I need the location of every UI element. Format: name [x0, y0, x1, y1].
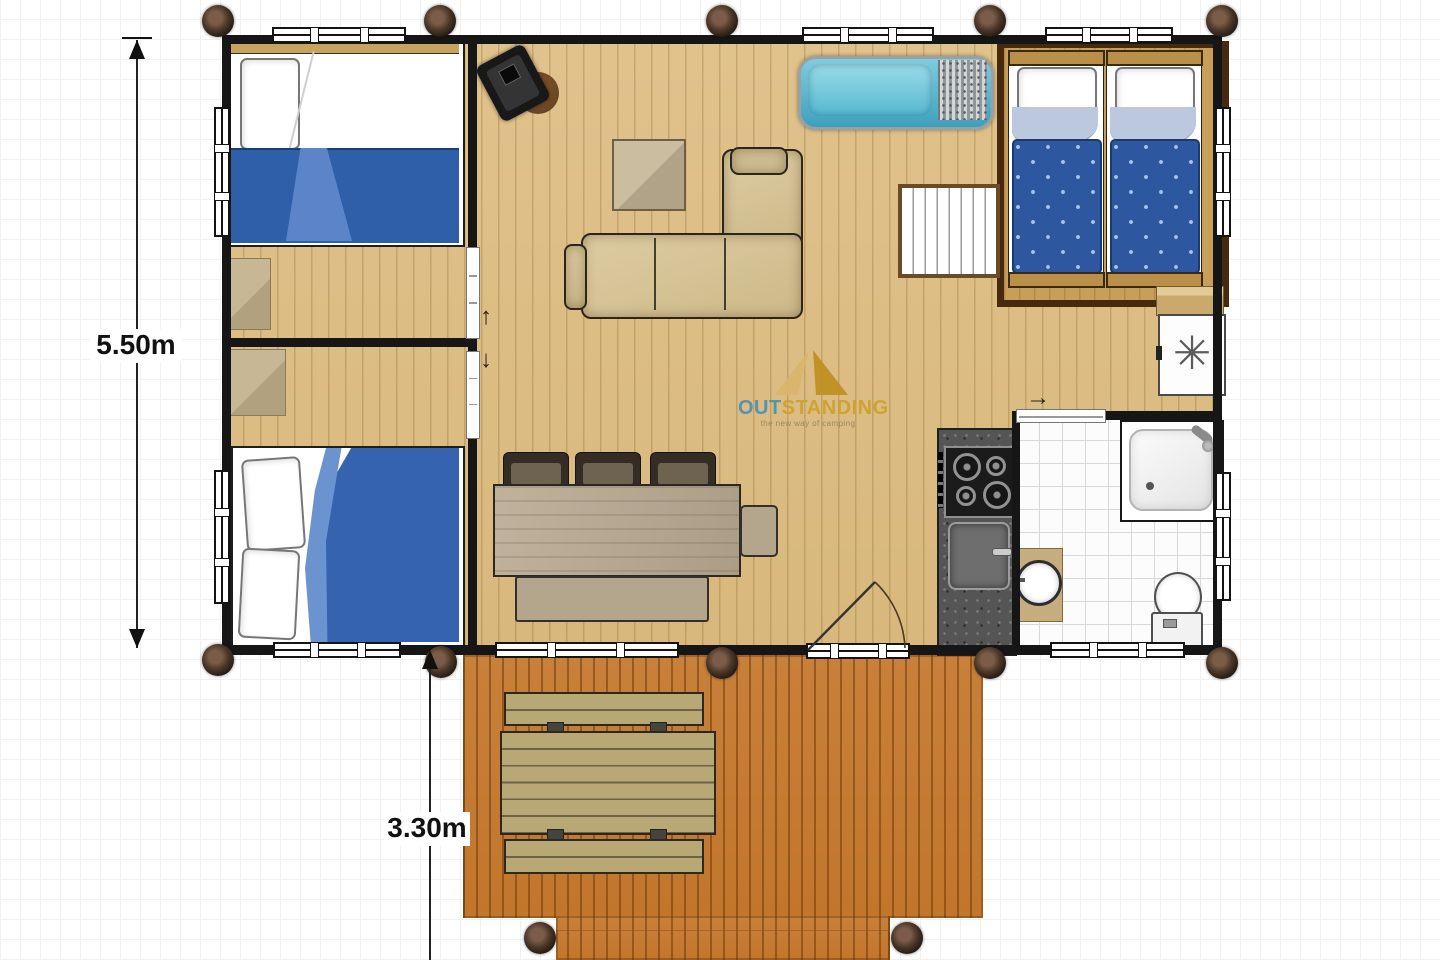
brand-name-part1: OUT — [738, 397, 782, 419]
coffee-table — [612, 139, 686, 211]
window — [1045, 27, 1173, 43]
dimension-arrow-down — [129, 629, 145, 648]
hob-knobs — [938, 452, 943, 508]
shower-drain — [1146, 482, 1154, 490]
window — [1215, 472, 1231, 601]
lounger-rack — [938, 60, 987, 120]
burner-small — [956, 486, 976, 506]
deck-terrace-step — [556, 916, 890, 960]
brand-watermark: OUTSTANDING the new way of camping — [738, 348, 878, 428]
dimension-arrow-up — [422, 650, 438, 669]
support-post — [891, 922, 923, 954]
wall-between-bedrooms — [222, 338, 468, 347]
dimension-cap — [122, 37, 152, 39]
support-post — [974, 5, 1006, 37]
bed-headboard — [1106, 50, 1203, 66]
dimension-terrace-label: 3.30m — [384, 812, 470, 846]
wall-interior-vertical — [468, 437, 477, 655]
window — [273, 642, 401, 658]
support-post — [974, 647, 1006, 679]
twin-bed-left — [1008, 50, 1104, 286]
deck-seam — [556, 930, 890, 931]
window — [1050, 642, 1185, 658]
dining-table — [493, 484, 741, 577]
faucet — [992, 548, 1012, 556]
pillow — [241, 456, 306, 552]
burner-large — [983, 481, 1011, 509]
window — [214, 107, 230, 237]
lounger-cushion — [808, 64, 932, 116]
dimension-height-label: 5.50m — [90, 329, 182, 363]
sofa-headrest — [730, 147, 788, 175]
duvet — [1012, 139, 1102, 274]
wash-basin — [1016, 560, 1062, 606]
support-post — [202, 644, 234, 676]
entrance-door-swing — [795, 545, 920, 660]
burner-small — [986, 456, 1006, 476]
support-post — [524, 922, 556, 954]
dresser — [227, 349, 286, 416]
gas-hob — [944, 446, 1014, 518]
slide-direction-right: → — [1026, 386, 1050, 410]
support-post — [424, 5, 456, 37]
support-post — [706, 647, 738, 679]
sofa-seam — [654, 238, 656, 310]
wardrobe — [898, 184, 1000, 278]
slide-direction-up: ↑ — [480, 305, 492, 329]
pillow — [238, 548, 301, 641]
shower — [1120, 420, 1224, 522]
window — [214, 470, 230, 604]
sofa-seam — [724, 238, 726, 310]
wall-interior-vertical — [468, 35, 477, 247]
dining-chair-end — [740, 505, 778, 557]
sofa-armrest — [564, 244, 587, 310]
twin-bed-right — [1106, 50, 1202, 286]
dimension-line-terrace — [429, 655, 431, 960]
sliding-door-bathroom — [1016, 409, 1106, 423]
dimension-arrow-up — [129, 40, 145, 59]
floor-plan-canvas: ✳ ↑ ↓ → — [0, 0, 1440, 960]
shower-tray — [1129, 429, 1213, 511]
support-post — [706, 5, 738, 37]
bed-footboard — [1008, 272, 1105, 288]
picnic-table — [500, 731, 716, 835]
window — [1215, 107, 1231, 237]
sliding-door-bedroom-bottom — [466, 351, 480, 439]
window — [272, 27, 406, 43]
bed-headboard — [1008, 50, 1105, 66]
tent-icon — [753, 348, 863, 398]
dining-bench — [515, 576, 709, 622]
support-post — [1206, 5, 1238, 37]
support-post — [202, 5, 234, 37]
bed-headboard — [231, 44, 459, 54]
wall-bathroom-top — [1104, 411, 1214, 420]
picnic-bench-bottom — [504, 839, 704, 874]
burner-large — [953, 453, 981, 481]
window — [802, 27, 934, 43]
brand-name: OUTSTANDING — [738, 398, 878, 418]
picnic-bench-top — [504, 692, 704, 726]
brand-tagline: the new way of camping — [738, 419, 878, 428]
wall-bathroom-left — [1012, 411, 1020, 655]
sofa-seat — [581, 233, 803, 319]
window — [495, 642, 679, 658]
kitchen-sink — [948, 522, 1010, 590]
brand-name-part2: STANDING — [782, 397, 889, 419]
duvet — [1110, 139, 1200, 274]
slide-direction-down: ↓ — [480, 348, 492, 372]
dresser — [227, 258, 271, 330]
support-post — [1206, 647, 1238, 679]
sliding-door-bedroom-top — [466, 247, 480, 339]
wall-interior-vertical — [468, 337, 477, 351]
